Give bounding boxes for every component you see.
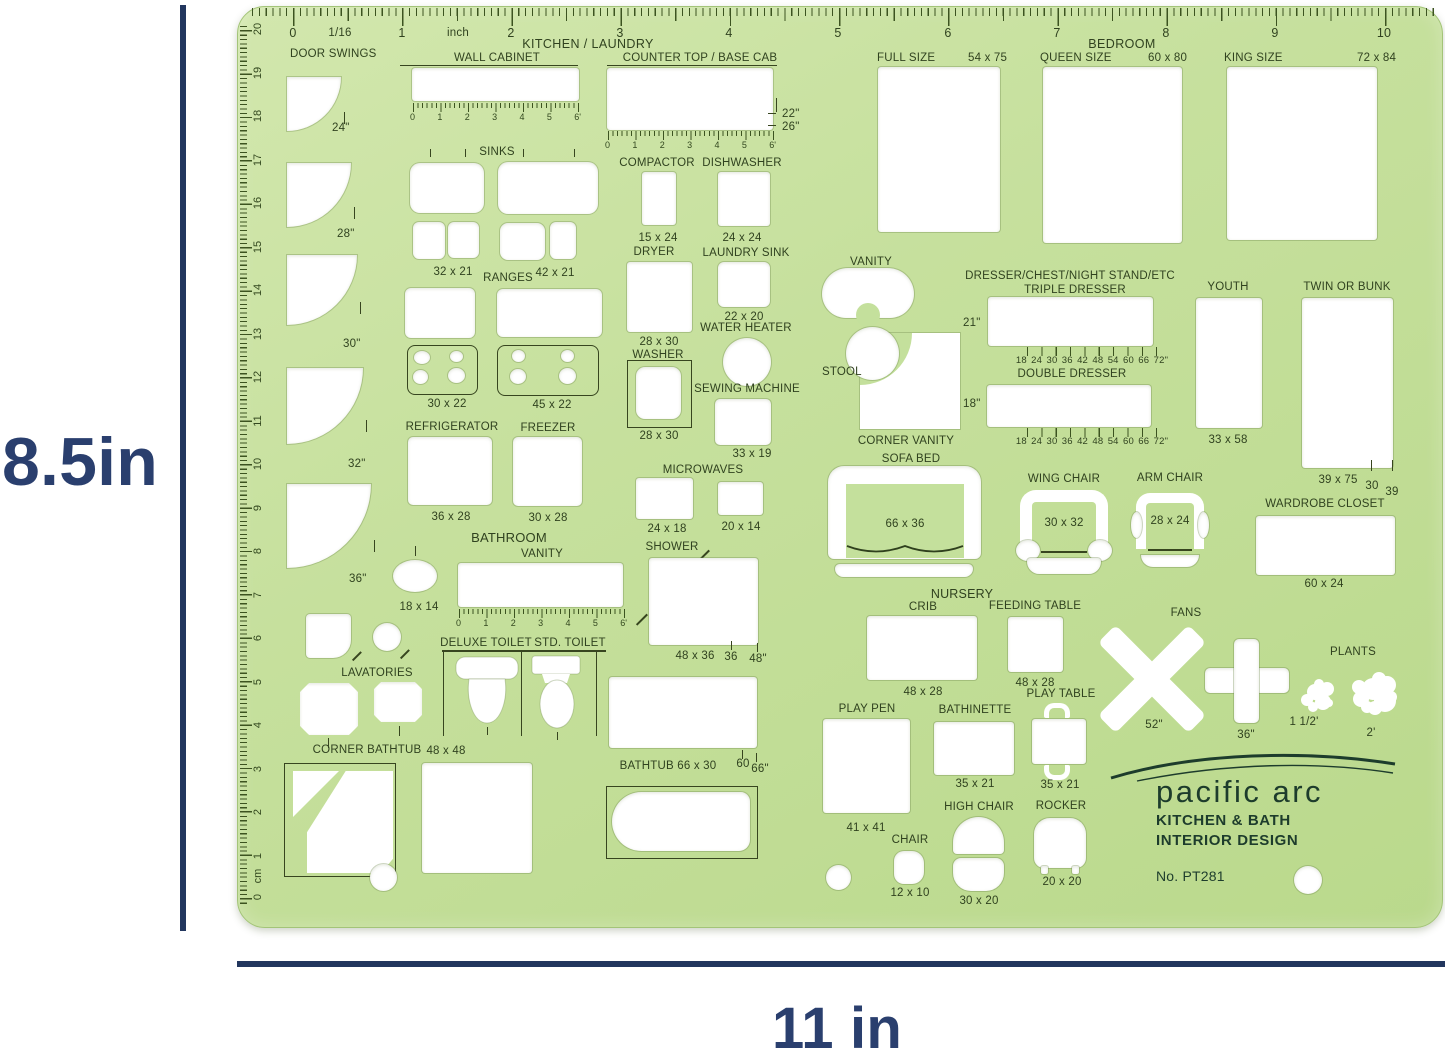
- product-photo-scene: 8.5in 11 in 0 1/16 1 inch 2 3 4 5 6 7 8 …: [0, 0, 1445, 1056]
- double-dresser-depth: 18": [963, 398, 980, 410]
- shower-depth: 48": [749, 653, 766, 665]
- rocker-cutout: [1034, 818, 1086, 868]
- plant-small-size: 1 1/2': [1290, 716, 1319, 728]
- wing-chair-seat-cutout: [1027, 558, 1101, 574]
- youth-bed-label: YOUTH: [1207, 281, 1248, 293]
- cm-ruler-number: 11: [252, 410, 264, 432]
- top-ruler-number: 5: [834, 27, 841, 40]
- wall-cabinet-ruler-numbers: 0123456': [410, 112, 581, 122]
- top-ruler-number: 1: [398, 27, 405, 40]
- ruler-number: 5: [547, 112, 552, 122]
- chair-size: 12 x 10: [890, 887, 929, 899]
- burner-cutout: [413, 370, 428, 384]
- full-bed-label: FULL SIZE: [877, 52, 935, 64]
- lavatory-cutout: [374, 682, 422, 722]
- fans-label: FANS: [1171, 607, 1202, 619]
- tick-mark: [1371, 460, 1372, 471]
- refrigerator-cutout: [408, 437, 492, 505]
- bathtub-tick-66: 66": [751, 763, 768, 775]
- stool-label: STOOL: [822, 366, 862, 378]
- tick-mark: [374, 540, 375, 552]
- full-bed-size: 54 x 75: [968, 52, 1007, 64]
- twin-bed-cutout: [1302, 298, 1393, 468]
- microwave-size: 24 x 18: [647, 523, 686, 535]
- height-dimension-line: [180, 5, 186, 931]
- brand-line1: KITCHEN & BATH: [1156, 813, 1291, 829]
- ruler-number: 3: [538, 618, 543, 628]
- dryer-label: DRYER: [633, 246, 674, 258]
- tick-mark: [430, 149, 431, 157]
- king-bed-cutout: [1227, 67, 1377, 240]
- ruler-number: 3: [492, 112, 497, 122]
- tick-mark: [399, 726, 400, 736]
- ruler-number: 4: [566, 618, 571, 628]
- range-size: 45 x 22: [532, 399, 571, 411]
- tick-mark: [756, 753, 757, 762]
- arm-chair-side: [1131, 512, 1142, 538]
- play-table-cutout: [1032, 719, 1086, 764]
- door-swing-24-size: 24": [332, 122, 349, 134]
- play-pen-size: 41 x 41: [846, 822, 885, 834]
- compactor-cutout: [642, 172, 676, 225]
- sewing-machine-cutout: [715, 399, 771, 445]
- tick-mark: [415, 546, 416, 556]
- ruler-number: 0: [605, 140, 610, 150]
- corner-bathtub-label: CORNER BATHTUB: [313, 744, 422, 756]
- freezer-label: FREEZER: [520, 422, 575, 434]
- play-pen-label: PLAY PEN: [839, 703, 896, 715]
- water-heater-label: WATER HEATER: [700, 322, 792, 334]
- corner-vanity-label: CORNER VANITY: [858, 435, 954, 447]
- guide-line: [607, 65, 777, 66]
- burner-cutout: [510, 369, 526, 384]
- sofa-bed-label: SOFA BED: [882, 453, 940, 465]
- dresser-ruler-numbers: 18 24 30 36 42 48 54 60 66 72": [1016, 437, 1168, 447]
- dresser-header: DRESSER/CHEST/NIGHT STAND/ETC: [965, 270, 1175, 282]
- toilet-cutouts: [440, 648, 615, 743]
- burner-cutout: [448, 368, 465, 383]
- seat-line: [1041, 551, 1087, 553]
- king-bed-label: KING SIZE: [1224, 52, 1283, 64]
- play-pen-cutout: [823, 719, 910, 813]
- microwave-cutout: [636, 478, 693, 519]
- queen-bed-cutout: [1043, 67, 1182, 243]
- top-ruler-number: 7: [1053, 27, 1060, 40]
- tick-mark: [360, 302, 361, 314]
- ruler-number: 5: [593, 618, 598, 628]
- guide-line: [400, 65, 578, 66]
- cm-ruler-number: 2: [252, 801, 264, 823]
- punch-hole: [370, 864, 397, 891]
- nursery-section-header: NURSERY: [931, 588, 993, 601]
- rocker-size: 20 x 20: [1042, 876, 1081, 888]
- wardrobe-label: WARDROBE CLOSET: [1265, 498, 1385, 510]
- shower-cutout: [649, 558, 758, 645]
- cm-ruler-number: 4: [252, 714, 264, 736]
- tick-mark: [465, 149, 466, 157]
- tick-mark: [366, 420, 367, 432]
- sink-cutout: [448, 222, 479, 258]
- door-swing-28-size: 28": [337, 228, 354, 240]
- cm-ruler-number: 3: [252, 758, 264, 780]
- youth-bed-cutout: [1196, 298, 1262, 428]
- ruler-number: 3: [687, 140, 692, 150]
- triple-dresser-cutout: [988, 297, 1153, 346]
- ruler-number: 1: [632, 140, 637, 150]
- width-dimension-line: [237, 961, 1445, 967]
- top-ruler-number: 0: [289, 27, 296, 40]
- youth-bed-size: 33 x 58: [1208, 434, 1247, 446]
- arm-chair-side: [1198, 512, 1209, 538]
- bath-sink-oval-cutout: [393, 560, 437, 592]
- door-swings-label: DOOR SWINGS: [290, 48, 377, 60]
- microwave-cutout: [718, 482, 763, 515]
- dishwasher-cutout: [718, 172, 770, 226]
- fan-x-cutout: [1104, 630, 1200, 728]
- ruler-number: 2: [660, 140, 665, 150]
- top-ruler-unit-label: inch: [447, 27, 469, 39]
- ruler-number: 4: [715, 140, 720, 150]
- top-ruler-inch-ticks: [293, 8, 1394, 26]
- ruler-number: 6': [574, 112, 581, 122]
- laundry-sink-cutout: [718, 262, 770, 307]
- tick-mark: [1392, 460, 1393, 471]
- ruler-number: 2: [465, 112, 470, 122]
- burner-cutout: [450, 351, 463, 362]
- burner-cutout: [512, 350, 525, 362]
- wing-chair-label: WING CHAIR: [1028, 473, 1100, 485]
- bathroom-section-header: BATHROOM: [471, 531, 547, 545]
- dryer-cutout: [627, 262, 692, 332]
- bath-vanity-cutout: [458, 563, 623, 607]
- range-cutout: [497, 289, 602, 337]
- tick-mark: [731, 641, 732, 650]
- vanity-ruler-major: [459, 609, 625, 618]
- sewing-machine-size: 33 x 19: [732, 448, 771, 460]
- sofa-bed-seat-cutout: [835, 564, 973, 577]
- height-dimension-label: 8.5in: [2, 428, 158, 496]
- cm-ruler-number: 18: [252, 105, 264, 127]
- plant-large-cutout: [1362, 678, 1384, 700]
- depth-bracket: [776, 98, 777, 112]
- bathtub-rect-cutout: [609, 677, 757, 748]
- depth-tick: [768, 125, 776, 126]
- play-table-chair: [1044, 765, 1070, 780]
- crib-size: 48 x 28: [903, 686, 942, 698]
- cm-ruler-number: 8: [252, 540, 264, 562]
- sink-size: 32 x 21: [433, 266, 472, 278]
- sink-size: 42 x 21: [535, 267, 574, 279]
- cm-ruler-unit: cm: [252, 865, 264, 887]
- arm-chair-size: 28 x 24: [1150, 515, 1189, 527]
- tick-mark: [557, 732, 558, 740]
- ranges-label: RANGES: [483, 272, 533, 284]
- wardrobe-size: 60 x 24: [1304, 578, 1343, 590]
- top-ruler-number: 9: [1271, 27, 1278, 40]
- water-heater-cutout: [723, 338, 771, 386]
- kidney-notch: [856, 303, 880, 327]
- counter-top-label: COUNTER TOP / BASE CAB: [623, 52, 778, 64]
- play-table-label: PLAY TABLE: [1027, 688, 1096, 700]
- tick-mark: [574, 149, 575, 157]
- dresser-ruler-numbers: 18 24 30 36 42 48 54 60 66 72": [1016, 356, 1168, 366]
- plants-label: PLANTS: [1330, 646, 1376, 658]
- high-chair-size: 30 x 20: [959, 895, 998, 907]
- shower-label: SHOWER: [646, 541, 699, 553]
- wall-cabinet-cutout: [412, 68, 579, 101]
- wardrobe-cutout: [1256, 516, 1395, 575]
- crib-cutout: [867, 616, 977, 680]
- microwave-size: 20 x 14: [721, 521, 760, 533]
- fan-x-size: 52": [1145, 719, 1162, 731]
- twin-bed-label: TWIN OR BUNK: [1303, 281, 1390, 293]
- corner-bathtub-size: 48 x 48: [426, 745, 465, 757]
- top-ruler-number: 8: [1162, 27, 1169, 40]
- dryer-size: 28 x 30: [639, 336, 678, 348]
- wall-cabinet-ruler-major: [413, 103, 579, 112]
- sink-cutout: [413, 222, 445, 259]
- washer-size: 28 x 30: [639, 430, 678, 442]
- high-chair-label: HIGH CHAIR: [944, 801, 1014, 813]
- compactor-label: COMPACTOR: [619, 157, 695, 169]
- play-table-chair: [1044, 703, 1070, 718]
- tick-mark: [757, 643, 758, 652]
- rocker-foot: [1072, 866, 1079, 874]
- high-chair-seat-cutout: [953, 858, 1004, 891]
- cm-ruler-number: 5: [252, 671, 264, 693]
- cm-ruler-number: 10: [252, 453, 264, 475]
- fan-plus-size: 36": [1237, 729, 1254, 741]
- cm-ruler-number: 20: [252, 18, 264, 40]
- bathinette-cutout: [934, 722, 1014, 775]
- double-dresser-label: DOUBLE DRESSER: [1018, 368, 1127, 380]
- brand-line2: INTERIOR DESIGN: [1156, 833, 1298, 849]
- model-number: No. PT281: [1156, 869, 1225, 884]
- queen-bed-size: 60 x 80: [1148, 52, 1187, 64]
- sewing-machine-label: SEWING MACHINE: [694, 383, 800, 395]
- compactor-size: 15 x 24: [638, 232, 677, 244]
- width-dimension-label: 11 in: [772, 1000, 902, 1056]
- door-swing-30-size: 30": [343, 338, 360, 350]
- queen-bed-label: QUEEN SIZE: [1040, 52, 1112, 64]
- feeding-table-cutout: [1008, 617, 1063, 672]
- cm-ruler-number: 19: [252, 62, 264, 84]
- counter-ruler-numbers: 0123456': [605, 140, 776, 150]
- cm-ruler-number: 16: [252, 192, 264, 214]
- ruler-number: 4: [520, 112, 525, 122]
- ruler-number: 0: [410, 112, 415, 122]
- bathinette-size: 35 x 21: [955, 778, 994, 790]
- washer-cutout: [636, 367, 681, 419]
- burner-cutout: [559, 368, 576, 384]
- counter-depth-26: 26": [782, 121, 799, 133]
- laundry-sink-label: LAUNDRY SINK: [703, 247, 790, 259]
- counter-top-cutout: [607, 68, 773, 130]
- top-ruler-number: 2: [507, 27, 514, 40]
- door-swing-32-size: 32": [348, 458, 365, 470]
- dishwasher-label: DISHWASHER: [702, 157, 782, 169]
- bed-vanity-label: VANITY: [850, 256, 892, 268]
- bath-vanity-label: VANITY: [521, 548, 563, 560]
- burner-cutout: [414, 351, 430, 364]
- cm-ruler-number: 14: [252, 279, 264, 301]
- twin-bed-size: 39 x 75: [1318, 474, 1357, 486]
- full-bed-cutout: [878, 67, 1000, 232]
- seat-line: [1148, 549, 1192, 551]
- cm-ruler-number: 15: [252, 236, 264, 258]
- vanity-ruler-numbers: 0123456': [456, 618, 627, 628]
- door-swing-36-size: 36": [349, 573, 366, 585]
- sofa-bed-size: 66 x 36: [885, 518, 924, 530]
- brand-name: pacific arc: [1156, 776, 1323, 809]
- bedroom-section-header: BEDROOM: [1088, 38, 1155, 51]
- wall-cabinet-label: WALL CABINET: [454, 52, 540, 64]
- counter-depth-22: 22": [782, 108, 799, 120]
- refrigerator-size: 36 x 28: [431, 511, 470, 523]
- king-bed-size: 72 x 84: [1357, 52, 1396, 64]
- lavatory-cutout: [373, 623, 401, 651]
- triple-dresser-depth: 21": [963, 317, 980, 329]
- cm-ruler-number: 0: [252, 886, 264, 908]
- bathinette-label: BATHINETTE: [939, 704, 1012, 716]
- range-cutout: [405, 288, 475, 338]
- tick-mark: [487, 727, 488, 735]
- arm-chair-seat-cutout: [1141, 555, 1199, 567]
- triple-dresser-label: TRIPLE DRESSER: [1024, 284, 1126, 296]
- plant-large-size: 2': [1367, 727, 1376, 739]
- ruler-number: 1: [437, 112, 442, 122]
- ruler-number: 6': [769, 140, 776, 150]
- feeding-table-label: FEEDING TABLE: [989, 600, 1081, 612]
- shower-size: 48 x 36: [675, 650, 714, 662]
- cm-ruler-number: 13: [252, 323, 264, 345]
- sink-cutout: [550, 222, 576, 259]
- sink-cutout: [500, 223, 545, 260]
- range-size: 30 x 22: [427, 398, 466, 410]
- sink-cutout: [498, 162, 598, 214]
- chair-cutout: [894, 851, 924, 884]
- rocker-foot: [1041, 866, 1048, 874]
- ruler-number: 5: [742, 140, 747, 150]
- lavatory-cutout: [300, 683, 358, 735]
- cm-ruler-number: 17: [252, 149, 264, 171]
- refrigerator-label: REFRIGERATOR: [406, 421, 499, 433]
- bathtub-tick-60: 60: [736, 758, 749, 770]
- twin-tick-30: 30: [1365, 480, 1378, 492]
- top-ruler-number: 6: [944, 27, 951, 40]
- counter-ruler-major: [608, 131, 774, 140]
- cm-ruler-number: 12: [252, 366, 264, 388]
- punch-hole: [1294, 866, 1322, 894]
- cm-ruler-number: 7: [252, 584, 264, 606]
- tick-mark: [354, 207, 355, 219]
- dishwasher-size: 24 x 24: [722, 232, 761, 244]
- cm-ruler-number: 1: [252, 845, 264, 867]
- burner-cutout: [561, 350, 574, 362]
- ruler-number: 1: [483, 618, 488, 628]
- punch-hole: [826, 865, 851, 890]
- double-dresser-cutout: [987, 385, 1151, 427]
- sinks-label: SINKS: [479, 146, 515, 158]
- twin-tick-39: 39: [1385, 486, 1398, 498]
- plant-small-cutout: [1307, 684, 1323, 700]
- play-table-size: 35 x 21: [1040, 779, 1079, 791]
- square-bathtub-cutout: [422, 763, 532, 873]
- kitchen-section-header: KITCHEN / LAUNDRY: [522, 38, 654, 51]
- top-ruler-sixteenth-label: 1/16: [328, 27, 351, 39]
- top-ruler-number: 4: [725, 27, 732, 40]
- microwaves-label: MICROWAVES: [663, 464, 744, 476]
- sink-cutout: [410, 163, 484, 213]
- fan-plus-blade: [1234, 639, 1259, 723]
- chair-label: CHAIR: [892, 834, 929, 846]
- arm-chair-label: ARM CHAIR: [1137, 472, 1203, 484]
- freezer-cutout: [513, 437, 582, 506]
- shower-width: 36: [724, 651, 737, 663]
- ruler-number: 6': [620, 618, 627, 628]
- freezer-size: 30 x 28: [528, 512, 567, 524]
- left-ruler-cm-ticks: [240, 30, 252, 902]
- bathtub-shaped-cutout: [612, 792, 750, 851]
- cm-ruler-number: 9: [252, 497, 264, 519]
- ruler-number: 2: [511, 618, 516, 628]
- sofa-bed-wave-line: [845, 543, 965, 559]
- crib-label: CRIB: [909, 601, 937, 613]
- cm-ruler-number: 6: [252, 627, 264, 649]
- bath-sink-size: 18 x 14: [399, 601, 438, 613]
- depth-tick: [768, 113, 776, 114]
- top-ruler-number: 10: [1377, 27, 1391, 40]
- lavatories-label: LAVATORIES: [341, 667, 412, 679]
- tick-mark: [523, 149, 524, 157]
- ruler-number: 0: [456, 618, 461, 628]
- rocker-label: ROCKER: [1036, 800, 1086, 812]
- wing-chair-size: 30 x 32: [1044, 517, 1083, 529]
- lavatory-cutout: [306, 614, 351, 658]
- bathtub-label: BATHTUB 66 x 30: [620, 760, 717, 772]
